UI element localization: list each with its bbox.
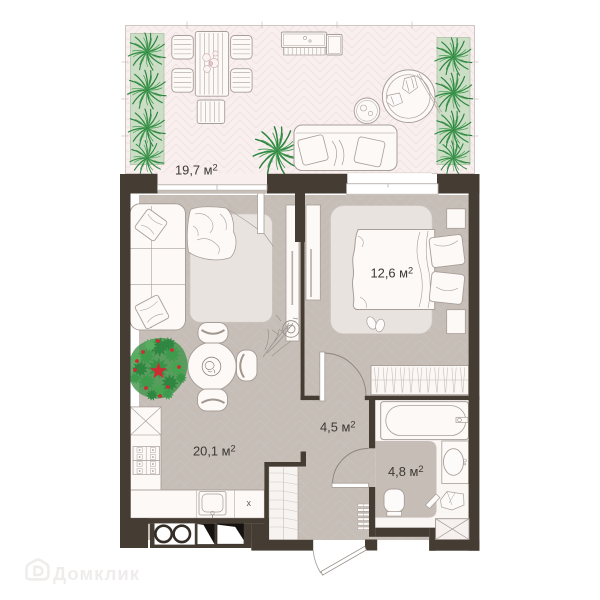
svg-text:4,5 м2: 4,5 м2 bbox=[320, 420, 356, 435]
svg-text:Домклик: Домклик bbox=[53, 563, 140, 584]
svg-text:4,8 м2: 4,8 м2 bbox=[388, 464, 424, 479]
svg-text:20,1 м2: 20,1 м2 bbox=[193, 444, 236, 459]
svg-text:x: x bbox=[247, 498, 252, 508]
svg-text:12,6 м2: 12,6 м2 bbox=[371, 266, 414, 281]
svg-text:19,7 м2: 19,7 м2 bbox=[175, 163, 218, 178]
